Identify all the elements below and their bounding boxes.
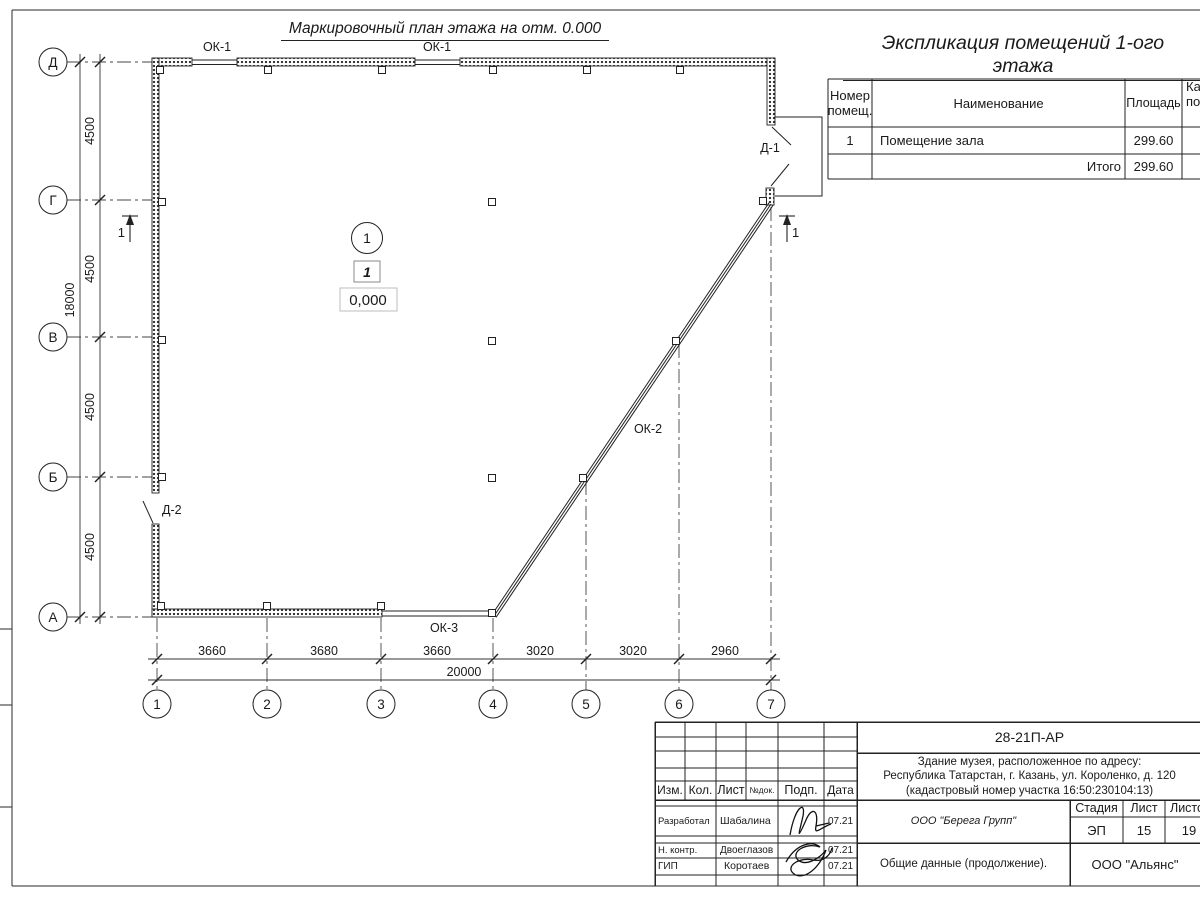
dim-total-left: 18000 <box>63 283 77 318</box>
tb-role-checker: Н. контр. <box>655 843 719 858</box>
windows <box>192 60 493 616</box>
tb-sheet-value: 15 <box>1123 817 1165 843</box>
tb-col-data: Дата <box>824 781 857 800</box>
window-label-ok2: ОК-2 <box>634 422 662 436</box>
door-d2 <box>143 501 153 523</box>
room-number: 1 <box>363 230 371 246</box>
door-d1 <box>771 117 822 196</box>
dim-d-g: 4500 <box>83 117 97 145</box>
dim-g-v: 4500 <box>83 255 97 283</box>
section-mark-left: 1 <box>118 225 125 240</box>
axis-label-3: 3 <box>377 697 385 712</box>
dim-3-4: 3660 <box>423 644 451 658</box>
tb-date-gip: 07.21 <box>824 858 857 875</box>
tb-name-gip: Коротаев <box>716 858 786 875</box>
dim-6-7: 2960 <box>711 644 739 658</box>
tb-date-checker: 07.21 <box>824 843 857 858</box>
tb-stage-value: ЭП <box>1070 817 1123 843</box>
dim-total-bottom: 20000 <box>447 665 482 679</box>
tb-col-izm: Изм. <box>655 781 685 800</box>
expl-header-name: Наименование <box>872 79 1125 127</box>
expl-header-category: Капо <box>1182 79 1200 127</box>
dimension-ticks <box>75 57 776 685</box>
axis-label-b: Б <box>49 470 58 485</box>
window-label-ok3: ОК-3 <box>430 621 458 635</box>
tb-sheets-label: Листов <box>1165 800 1200 817</box>
drawing-sheet: Д Г В Б А 1 2 3 4 5 6 7 3660 3680 3660 3… <box>0 0 1200 900</box>
expl-row-name: Помещение зала <box>872 127 1125 154</box>
section-mark-right: 1 <box>792 225 799 240</box>
expl-row-area: 299.60 <box>1125 127 1182 154</box>
dim-v-b: 4500 <box>83 393 97 421</box>
axis-label-2: 2 <box>263 697 271 712</box>
window-label-ok1-left: ОК-1 <box>203 40 231 54</box>
expl-total-area: 299.60 <box>1125 154 1182 179</box>
elevation-value: 0,000 <box>349 292 387 309</box>
dimension-lines <box>80 54 780 680</box>
expl-row-number: 1 <box>828 127 872 154</box>
window-label-ok1-right: ОК-1 <box>423 40 451 54</box>
dim-1-2: 3660 <box>198 644 226 658</box>
tb-col-podp: Подп. <box>778 781 824 800</box>
dim-4-5: 3020 <box>526 644 554 658</box>
tb-role-gip: ГИП <box>655 858 719 875</box>
axis-lines <box>67 62 771 690</box>
axis-circles-cols <box>143 690 785 718</box>
axis-label-a: А <box>48 610 57 625</box>
axis-label-7: 7 <box>767 697 775 712</box>
tb-org-designer: ООО "Берега Групп" <box>857 800 1070 843</box>
tb-doc-number: 28-21П-АР <box>857 722 1200 753</box>
axis-label-g: Г <box>49 193 57 208</box>
axis-label-d: Д <box>48 55 57 70</box>
grid-markers <box>157 67 767 617</box>
door-label-d1: Д-1 <box>760 141 780 155</box>
expl-total-label: Итого <box>872 154 1125 179</box>
plan-title: Маркировочный план этажа на отм. 0.000 <box>240 20 650 41</box>
tb-project-name: Здание музея, расположенное по адресу: Р… <box>857 753 1200 800</box>
axis-label-4: 4 <box>489 697 497 712</box>
axis-label-6: 6 <box>675 697 683 712</box>
dim-b-a: 4500 <box>83 533 97 561</box>
tb-org-contractor: ООО "Альянс" <box>1070 843 1200 886</box>
tb-sheets-value: 19 <box>1165 817 1200 843</box>
tb-col-list: Лист <box>716 781 746 800</box>
room-tag: 1 <box>363 264 371 280</box>
axis-label-5: 5 <box>582 697 590 712</box>
tb-date-developer: 07.21 <box>824 806 857 836</box>
tb-sheet-label: Лист <box>1123 800 1165 817</box>
tb-col-kol: Кол. <box>685 781 716 800</box>
axis-label-1: 1 <box>153 697 161 712</box>
tb-name-checker: Двоеглазов <box>716 843 782 858</box>
diagonal-wall <box>492 203 773 618</box>
axis-label-v: В <box>48 330 57 345</box>
tb-doc-title: Общие данные (продолжение). <box>857 843 1070 886</box>
tb-role-developer: Разработал <box>655 806 719 836</box>
tb-col-ndok: №док. <box>746 781 778 800</box>
expl-header-number: Номерпомещ. <box>828 79 872 127</box>
explication-heading: Экспликация помещений 1-ого этажа <box>843 32 1200 81</box>
expl-header-area: Площадь <box>1125 79 1182 127</box>
door-label-d2: Д-2 <box>162 503 182 517</box>
dim-2-3: 3680 <box>310 644 338 658</box>
tb-name-developer: Шабалина <box>716 806 782 836</box>
dim-5-6: 3020 <box>619 644 647 658</box>
tb-stage-label: Стадия <box>1070 800 1123 817</box>
